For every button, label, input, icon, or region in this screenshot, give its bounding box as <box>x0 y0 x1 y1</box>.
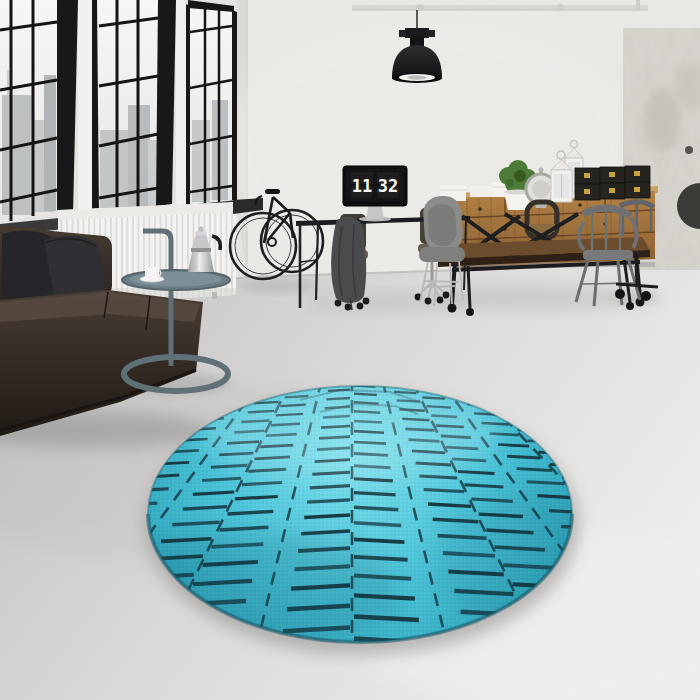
window-pillar <box>78 0 92 242</box>
window-2 <box>92 0 176 216</box>
storage-boxes <box>575 166 650 200</box>
window-3 <box>186 0 237 208</box>
draped-jacket <box>331 217 366 310</box>
loft-interior-photo: 11 32 <box>0 0 700 700</box>
bike-saddle <box>265 189 280 194</box>
scene: 11 32 <box>0 0 700 700</box>
chair-seat <box>583 250 633 260</box>
window-1 <box>0 0 78 224</box>
clock-hours: 11 <box>352 176 372 196</box>
window-pillar <box>176 0 186 230</box>
sofa-pillow <box>44 236 106 298</box>
windows <box>0 0 237 236</box>
clock-minutes: 32 <box>378 176 398 196</box>
